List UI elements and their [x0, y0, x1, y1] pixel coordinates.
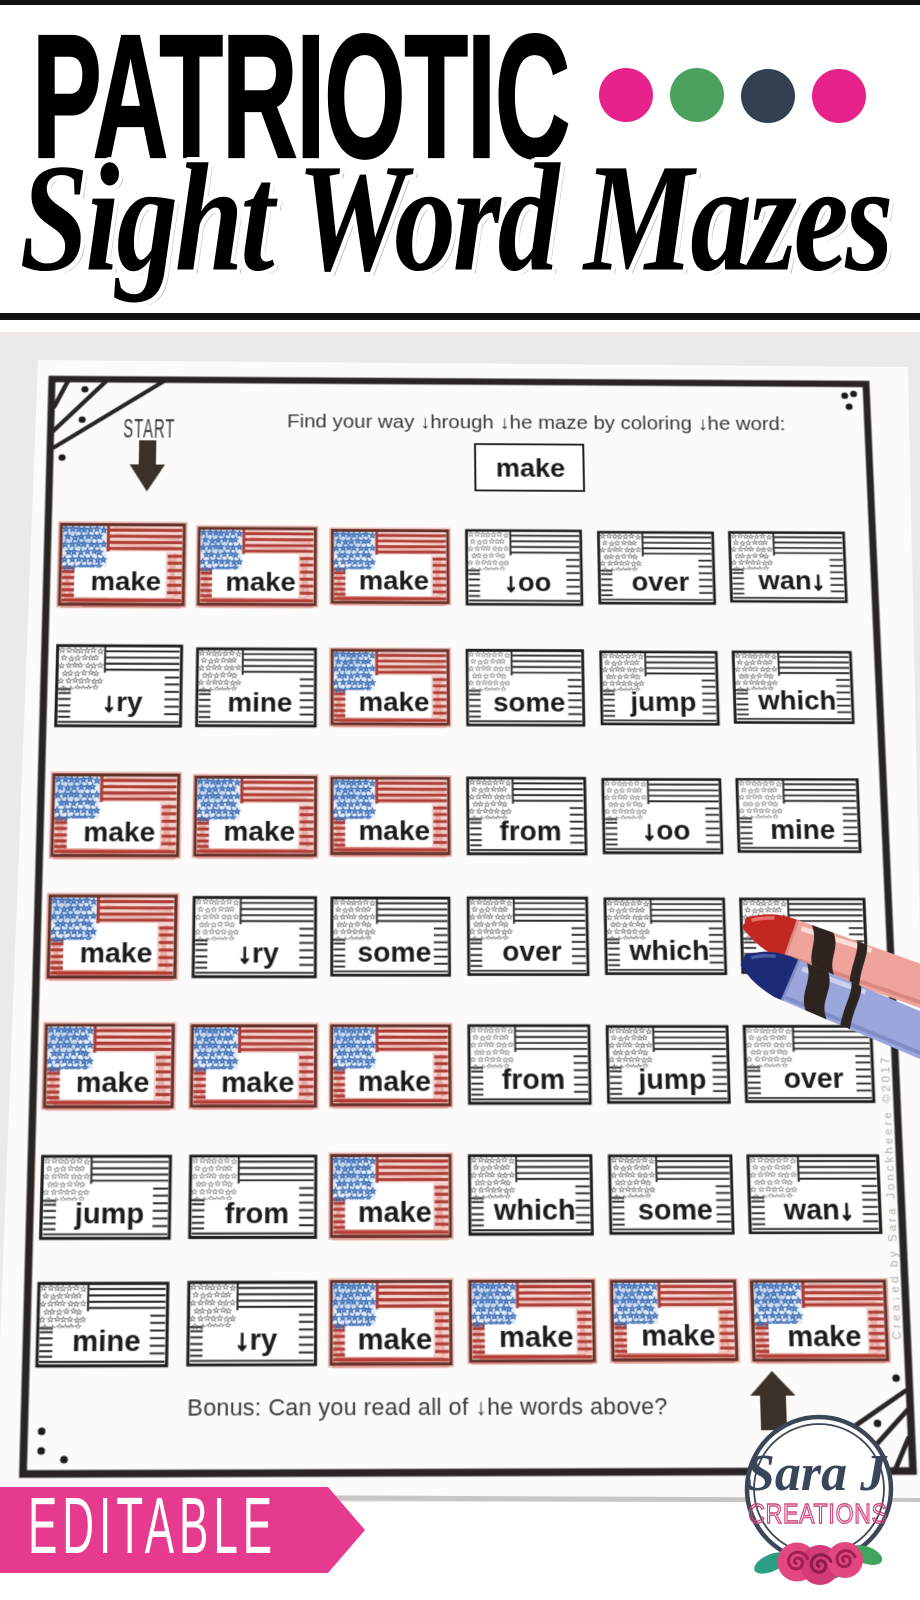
svg-text:START: START	[123, 413, 176, 444]
svg-text:some: some	[357, 938, 431, 968]
svg-text:over: over	[502, 937, 562, 967]
svg-text:Sara J: Sara J	[746, 1445, 888, 1502]
svg-text:which: which	[757, 687, 837, 716]
svg-text:mine: mine	[227, 689, 292, 718]
svg-text:which: which	[628, 937, 710, 967]
svg-text:over: over	[631, 569, 689, 597]
svg-text:over: over	[783, 1064, 844, 1094]
svg-text:Bonus: Can you read all of ↓he: Bonus: Can you read all of ↓he words abo…	[187, 1395, 668, 1421]
svg-text:make: make	[641, 1321, 716, 1353]
svg-text:make: make	[359, 567, 429, 595]
svg-text:from: from	[502, 1066, 566, 1096]
svg-text:some: some	[637, 1195, 713, 1226]
svg-text:mine: mine	[72, 1326, 141, 1358]
svg-text:make: make	[79, 939, 152, 969]
svg-text:make: make	[499, 1322, 574, 1354]
svg-text:↓ry: ↓ry	[102, 689, 144, 718]
svg-text:↓oo: ↓oo	[642, 817, 691, 846]
svg-text:make: make	[358, 1324, 433, 1356]
svg-text:jump: jump	[629, 689, 697, 718]
svg-text:↓ry: ↓ry	[238, 939, 280, 969]
svg-text:make: make	[223, 818, 295, 847]
svg-text:Find your way ↓hrough ↓he maze: Find your way ↓hrough ↓he maze by colori…	[287, 411, 786, 435]
svg-text:make: make	[358, 817, 430, 846]
svg-text:make: make	[496, 455, 566, 483]
svg-text:from: from	[225, 1198, 290, 1229]
svg-text:which: which	[493, 1196, 576, 1227]
svg-text:↓oo: ↓oo	[504, 569, 551, 597]
svg-text:make: make	[787, 1321, 862, 1353]
svg-text:make: make	[359, 688, 430, 717]
svg-text:make: make	[76, 1068, 150, 1098]
svg-text:CREATIONS: CREATIONS	[748, 1499, 888, 1530]
svg-text:make: make	[83, 818, 156, 847]
svg-text:wan↓: wan↓	[757, 567, 826, 595]
svg-text:make: make	[358, 1197, 432, 1228]
svg-text:from: from	[499, 817, 561, 846]
svg-text:jump: jump	[637, 1065, 707, 1095]
svg-text:make: make	[221, 1068, 294, 1098]
svg-text:make: make	[90, 568, 161, 596]
svg-text:↓ry: ↓ry	[235, 1325, 278, 1357]
svg-text:some: some	[493, 689, 566, 718]
svg-text:mine: mine	[770, 816, 836, 845]
svg-text:make: make	[225, 569, 296, 597]
svg-text:make: make	[358, 1067, 431, 1097]
svg-text:wan↓: wan↓	[782, 1195, 854, 1226]
svg-text:jump: jump	[73, 1199, 144, 1230]
